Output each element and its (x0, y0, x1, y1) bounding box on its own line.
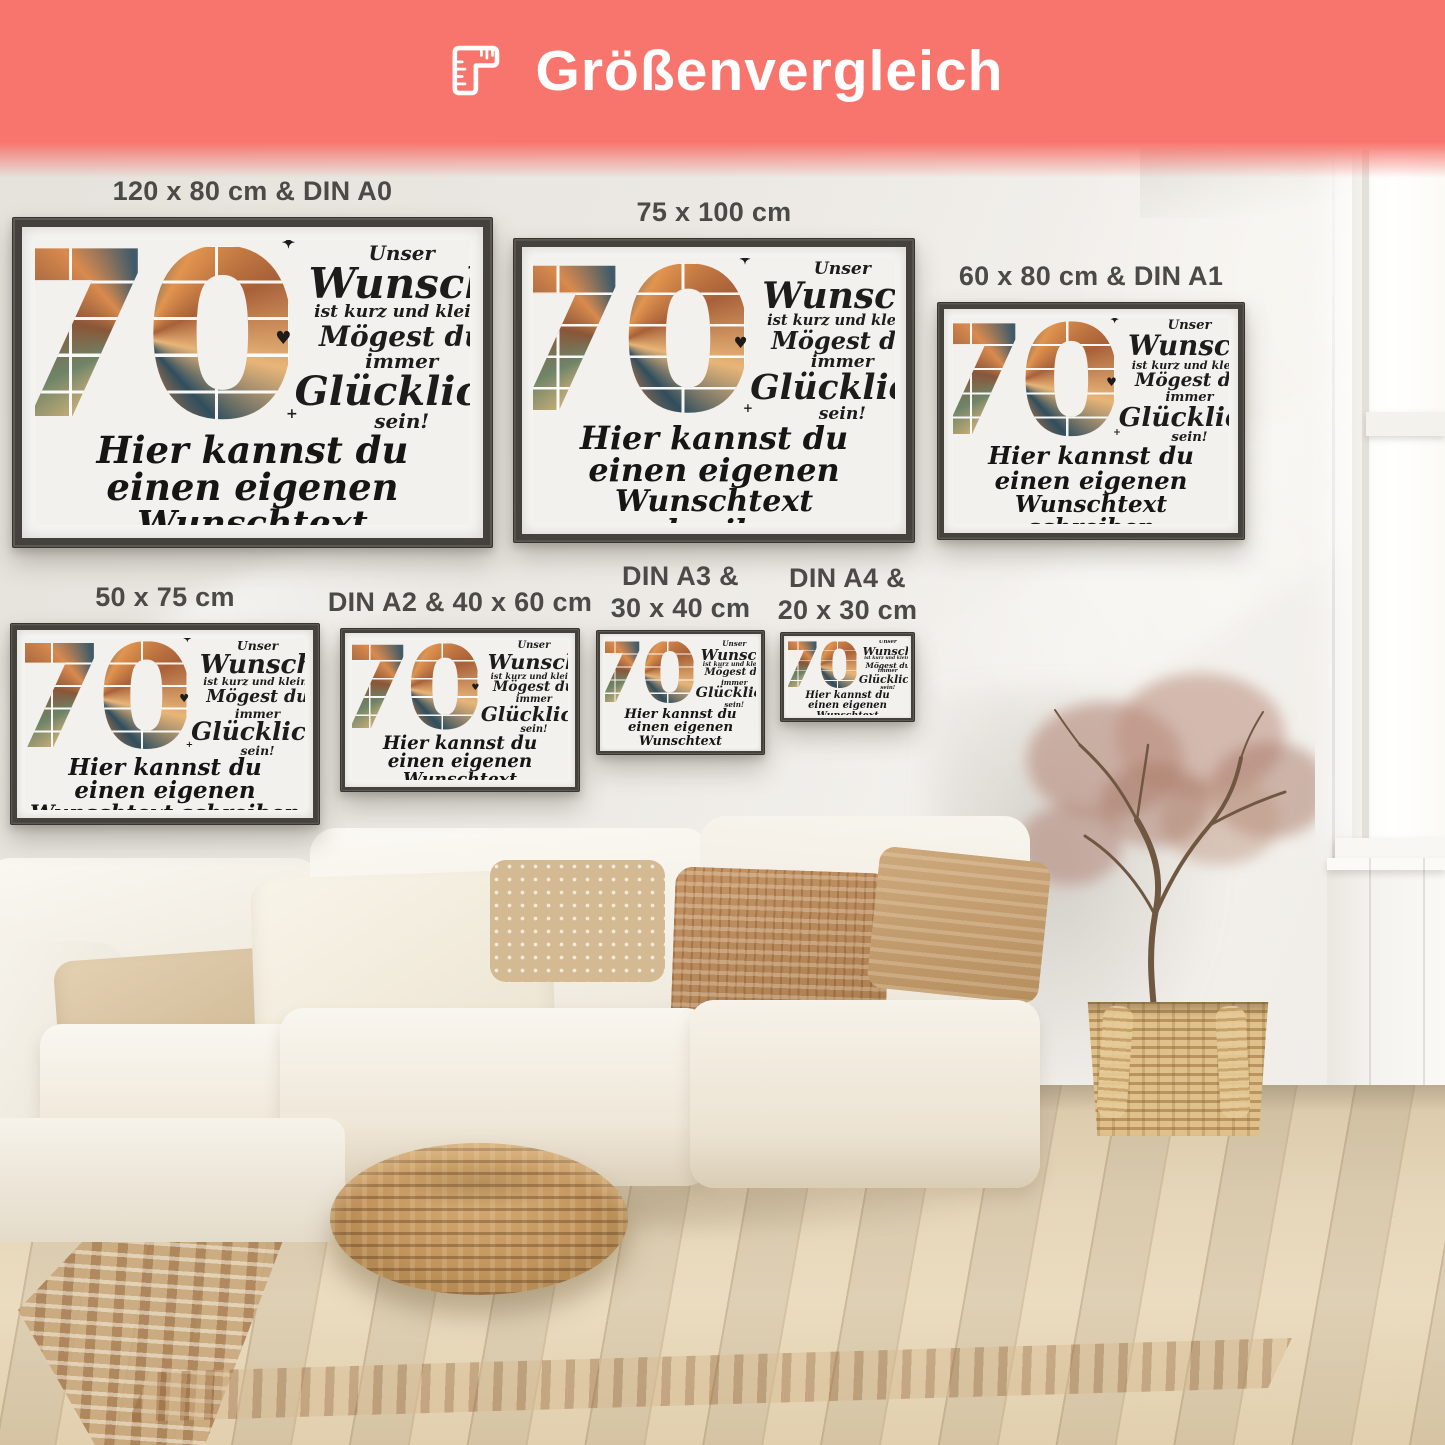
wish-line: Glücklich (696, 686, 756, 700)
plus-icon: + (186, 741, 193, 750)
sofa-seat-cushion (690, 1000, 1040, 1188)
custom-text-line: Hier kannst du einen eigenen (540, 423, 888, 487)
poster-frame: 70 ✦ ♥ ♥ ♥ + Unser Wunsch ist kurz und k… (12, 217, 493, 548)
product-size-comparison-image: 120 x 80 cm & DIN A0 70 ✦ ♥ ♥ ♥ + Unser (0, 0, 1445, 1445)
wish-line: Wunsch (750, 279, 895, 313)
plus-icon: + (286, 407, 298, 421)
photo-collage-number-70: 70 (788, 641, 858, 691)
custom-text-line: Wunschtext schreiben (30, 803, 300, 811)
wish-line: Glücklich (481, 705, 568, 724)
custom-text-line: Hier kannst du einen eigenen (608, 708, 753, 735)
poster-120x80-din-a0: 120 x 80 cm & DIN A0 70 ✦ ♥ ♥ ♥ + Unser (12, 217, 493, 548)
poster-mat: 70 ✦ ♥ ♥ ♥ + Unser Wunsch ist kurz und k… (17, 630, 314, 819)
wish-text-block: ✦ ♥ ♥ ♥ + Unser Wunsch ist kurz und klei… (750, 260, 895, 423)
heart-icon: ♥ (471, 684, 479, 693)
poster-art: 70 ✦ ♥ ♥ ♥ + Unser Wunsch ist kurz und k… (533, 258, 895, 523)
dried-foliage (1018, 673, 1315, 885)
poster-mat: 70 ♥ Unser Wunsch ist kurz und klein: Mö… (784, 636, 911, 718)
photo-collage-number-70: 70 (533, 263, 745, 421)
wish-line: Wunsch (1119, 333, 1230, 359)
window-jamb (1362, 150, 1369, 850)
header-banner: Größenvergleich (0, 0, 1445, 142)
window (1352, 150, 1445, 850)
wish-line: Glücklich (295, 372, 470, 411)
wish-line: Mögest du (295, 322, 470, 351)
wish-line: Glücklich (1119, 405, 1230, 431)
poster-frame: 70 ✦ ♥ ♥ ♥ + Unser Wunsch ist kurz und k… (10, 623, 320, 825)
poster-mat: 70 ♥ Unser Wunsch ist kurz und klein: Mö… (600, 634, 761, 751)
sparkle-icon: ✦ (282, 240, 295, 251)
poster-art: 70 ♥ Unser Wunsch ist kurz und klein: Mö… (605, 639, 756, 746)
sofa-chaise (0, 1118, 345, 1242)
photo-collage-number-70: 70 (605, 641, 694, 707)
poster-mat: 70 ✦ ♥ ♥ ♥ + Unser Wunsch ist kurz und k… (522, 247, 907, 535)
custom-text-line: Wunschtext schreiben (608, 735, 753, 746)
poster-frame: 70 ♥ ♥ Unser Wunsch ist kurz und klein: … (340, 628, 580, 792)
poster-art: 70 ✦ ♥ ♥ ♥ + Unser Wunsch ist kurz und k… (25, 638, 306, 811)
wish-line: Wunsch (481, 652, 568, 672)
heart-icon: ♥ (734, 335, 748, 350)
wish-text-block: ♥ Unser Wunsch ist kurz und klein: Möges… (859, 640, 908, 691)
wish-line: sein! (859, 686, 908, 692)
custom-text-line: Wunschtext schreiben (958, 493, 1224, 524)
photo-collage-number-70: 70 (352, 643, 478, 734)
ruler-icon (442, 40, 508, 102)
poster-art: 70 ♥ Unser Wunsch ist kurz und klein: Mö… (788, 640, 908, 715)
poster-frame: 70 ✦ ♥ ♥ ♥ + Unser Wunsch ist kurz und k… (937, 302, 1245, 540)
poster-size-label: DIN A4 &20 x 30 cm (778, 563, 918, 627)
poster-frame: 70 ♥ Unser Wunsch ist kurz und klein: Mö… (596, 630, 765, 755)
custom-text-line: Hier kannst du einen eigenen (43, 432, 462, 506)
custom-text-line: Wunschtext schreiben (356, 772, 564, 780)
wish-line: Wunsch (696, 648, 756, 662)
wish-text-block: ✦ ♥ ♥ ♥ + Unser Wunsch ist kurz und klei… (191, 639, 305, 756)
poster-mat: 70 ✦ ♥ ♥ ♥ + Unser Wunsch ist kurz und k… (944, 309, 1238, 533)
photo-collage-number-70: 70 (953, 321, 1115, 442)
wish-text-block: ♥ Unser Wunsch ist kurz und klein: Möges… (696, 640, 756, 708)
wish-line: Mögest du (750, 328, 895, 353)
plus-icon: + (1113, 428, 1121, 437)
wish-line: sein! (696, 701, 756, 709)
poster-frame: 70 ♥ Unser Wunsch ist kurz und klein: Mö… (780, 632, 915, 722)
poster-art: 70 ♥ ♥ Unser Wunsch ist kurz und klein: … (352, 640, 568, 780)
poster-50x75: 50 x 75 cm 70 ✦ ♥ ♥ ♥ + Unser Wunsch (10, 623, 320, 825)
wish-line: sein! (750, 405, 895, 423)
pillow-patterned (490, 860, 665, 982)
basket-handle (1096, 1005, 1134, 1119)
heart-icon: ♥ (275, 330, 291, 348)
custom-text-line: Wunschtext schreiben (43, 506, 462, 525)
cabinet-ledge (1327, 858, 1445, 870)
poster-60x80-din-a1: 60 x 80 cm & DIN A1 70 ✦ ♥ ♥ ♥ + Unser W (937, 302, 1245, 540)
custom-text-line: Hier kannst du einen eigenen (356, 735, 564, 772)
custom-text-line: Hier kannst du einen eigenen (790, 691, 906, 711)
wish-line: Mögest du (481, 680, 568, 695)
poster-frame: 70 ✦ ♥ ♥ ♥ + Unser Wunsch ist kurz und k… (513, 238, 915, 543)
custom-text-line: Hier kannst du einen eigenen (30, 757, 301, 803)
plus-icon: + (743, 402, 753, 414)
wish-text-block: ♥ ♥ Unser Wunsch ist kurz und klein: Mög… (481, 641, 568, 735)
woven-pouf (330, 1143, 628, 1295)
wish-line: Wunsch (191, 653, 305, 678)
wish-line: Glücklich (191, 720, 305, 744)
wish-line: Wunsch (295, 264, 470, 304)
photo-collage-number-70: 70 (35, 246, 289, 430)
poster-din-a4-20x30: DIN A4 &20 x 30 cm 70 ♥ Unser Wunsch ist… (780, 632, 915, 722)
custom-text-line: Wunschtext schreiben (790, 711, 906, 714)
custom-text-line: Hier kannst du einen eigenen (958, 444, 1224, 493)
poster-size-label: 60 x 80 cm & DIN A1 (959, 261, 1223, 293)
wish-line: sein! (481, 725, 568, 735)
basket-handle (1215, 1005, 1251, 1118)
storage-basket (1082, 1002, 1274, 1136)
poster-art: 70 ✦ ♥ ♥ ♥ + Unser Wunsch ist kurz und k… (35, 240, 470, 525)
poster-size-label: 120 x 80 cm & DIN A0 (113, 176, 393, 208)
window-mullion (1366, 412, 1445, 436)
wish-line: sein! (191, 744, 305, 757)
page-title: Größenvergleich (536, 38, 1004, 104)
wish-line: Mögest du (191, 688, 305, 706)
poster-art: 70 ✦ ♥ ♥ ♥ + Unser Wunsch ist kurz und k… (953, 318, 1230, 525)
poster-din-a3-30x40: DIN A3 &30 x 40 cm 70 ♥ Unser Wunsch ist… (596, 630, 765, 755)
wish-text-block: ✦ ♥ ♥ ♥ + Unser Wunsch ist kurz und klei… (1119, 319, 1230, 444)
wish-line: Mögest du (1119, 371, 1230, 390)
poster-size-label: DIN A2 & 40 x 60 cm (328, 587, 592, 619)
wish-line: Glücklich (750, 372, 895, 406)
wish-text-block: ✦ ♥ ♥ ♥ + Unser Wunsch ist kurz und klei… (295, 243, 470, 432)
heart-icon: ♥ (1106, 377, 1117, 389)
sparkle-icon: ✦ (183, 638, 191, 645)
pillow-tan (866, 845, 1052, 1004)
poster-mat: 70 ♥ ♥ Unser Wunsch ist kurz und klein: … (345, 633, 574, 786)
sparkle-icon: ✦ (739, 258, 751, 268)
poster-din-a2-40x60: DIN A2 & 40 x 60 cm 70 ♥ ♥ Unser Wunsch … (340, 628, 580, 792)
poster-size-label: DIN A3 &30 x 40 cm (611, 561, 751, 625)
custom-text-line: Wunschtext schreiben (540, 487, 888, 523)
poster-mat: 70 ✦ ♥ ♥ ♥ + Unser Wunsch ist kurz und k… (22, 227, 483, 538)
poster-75x100: 75 x 100 cm 70 ✦ ♥ ♥ ♥ + Unser Wunsch (513, 238, 915, 543)
photo-collage-number-70: 70 (25, 641, 188, 755)
poster-size-label: 50 x 75 cm (95, 582, 235, 614)
poster-size-label: 75 x 100 cm (637, 197, 792, 229)
heart-icon: ♥ (179, 693, 189, 704)
sparkle-icon: ✦ (1110, 318, 1119, 326)
